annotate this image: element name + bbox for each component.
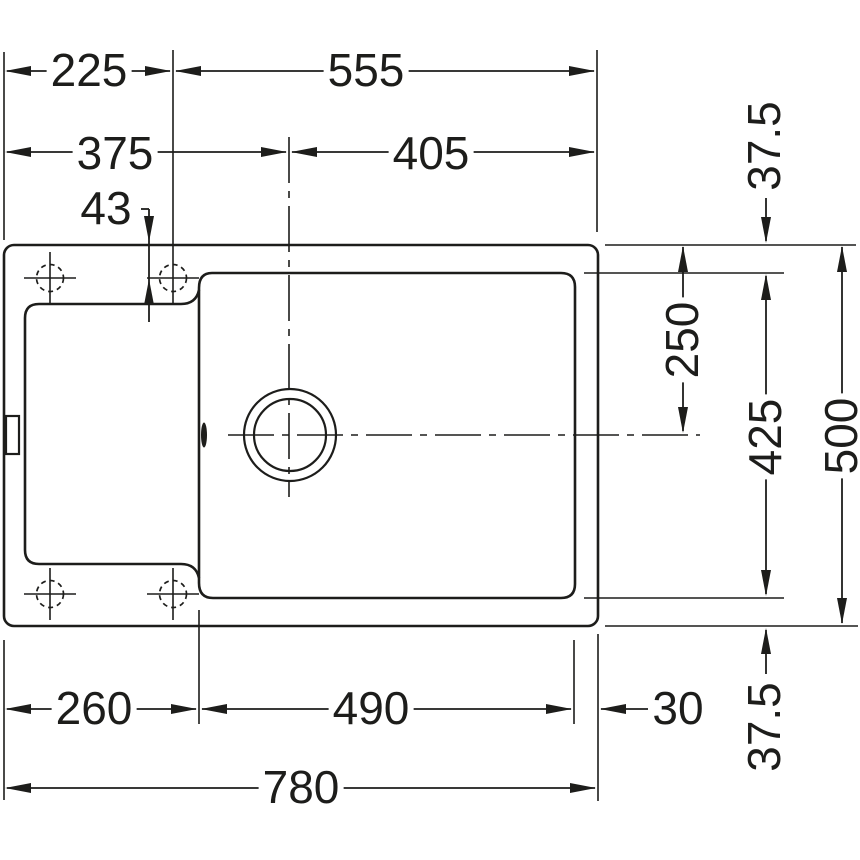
dim-label-bowl-width: 490 — [329, 685, 414, 733]
faucet-hole-bottom-left — [24, 568, 76, 620]
dim-label-top-right-width: 555 — [324, 47, 409, 95]
faucet-hole-bottom-right — [147, 568, 199, 620]
dim-label-bowl-margin-right: 30 — [648, 685, 707, 733]
dim-label-tap-hole-offset: 43 — [76, 185, 135, 233]
bowl-overflow-notch — [201, 423, 207, 448]
dim-label-left-to-bowl: 260 — [52, 685, 137, 733]
faucet-hole-top-right — [147, 252, 199, 304]
dim-label-overall-depth: 500 — [818, 394, 860, 479]
dim-label-bowl-depth: 425 — [742, 395, 790, 480]
dim-label-rear-margin: 37.5 — [741, 97, 789, 195]
dim-label-front-margin: 37.5 — [741, 678, 789, 776]
dim-label-left-to-bowl-center: 375 — [73, 130, 158, 178]
dim-label-drain-center-depth: 250 — [659, 298, 707, 383]
dim-label-overall-width: 780 — [259, 764, 344, 812]
sink-drainboard — [25, 290, 199, 578]
dim-label-top-left-width: 225 — [47, 47, 132, 95]
dim-label-bowl-center-to-right: 405 — [389, 130, 474, 178]
overflow-slot — [6, 416, 19, 454]
faucet-hole-top-left — [24, 252, 76, 304]
sink-technical-drawing: 225 555 375 405 43 260 490 30 780 37.5 2… — [0, 0, 860, 860]
